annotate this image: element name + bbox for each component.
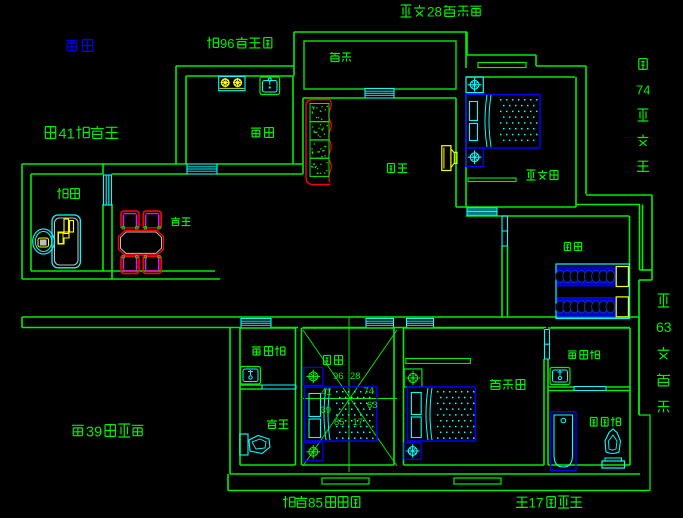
svg-text:96: 96 [333, 371, 344, 382]
svg-text:63: 63 [656, 319, 672, 335]
svg-text:74: 74 [636, 82, 650, 97]
svg-text:41: 41 [321, 387, 332, 398]
svg-text:85: 85 [308, 495, 323, 510]
svg-text:85: 85 [334, 417, 345, 428]
svg-text:63: 63 [367, 400, 378, 411]
svg-text:74: 74 [364, 386, 375, 397]
svg-text:17: 17 [529, 495, 544, 510]
svg-text:96: 96 [220, 36, 234, 51]
svg-text:28: 28 [427, 4, 442, 19]
svg-text:17: 17 [353, 417, 364, 428]
svg-text:41: 41 [59, 126, 75, 142]
svg-text:39: 39 [321, 405, 332, 416]
svg-text:39: 39 [86, 424, 102, 440]
svg-text:28: 28 [350, 371, 361, 382]
